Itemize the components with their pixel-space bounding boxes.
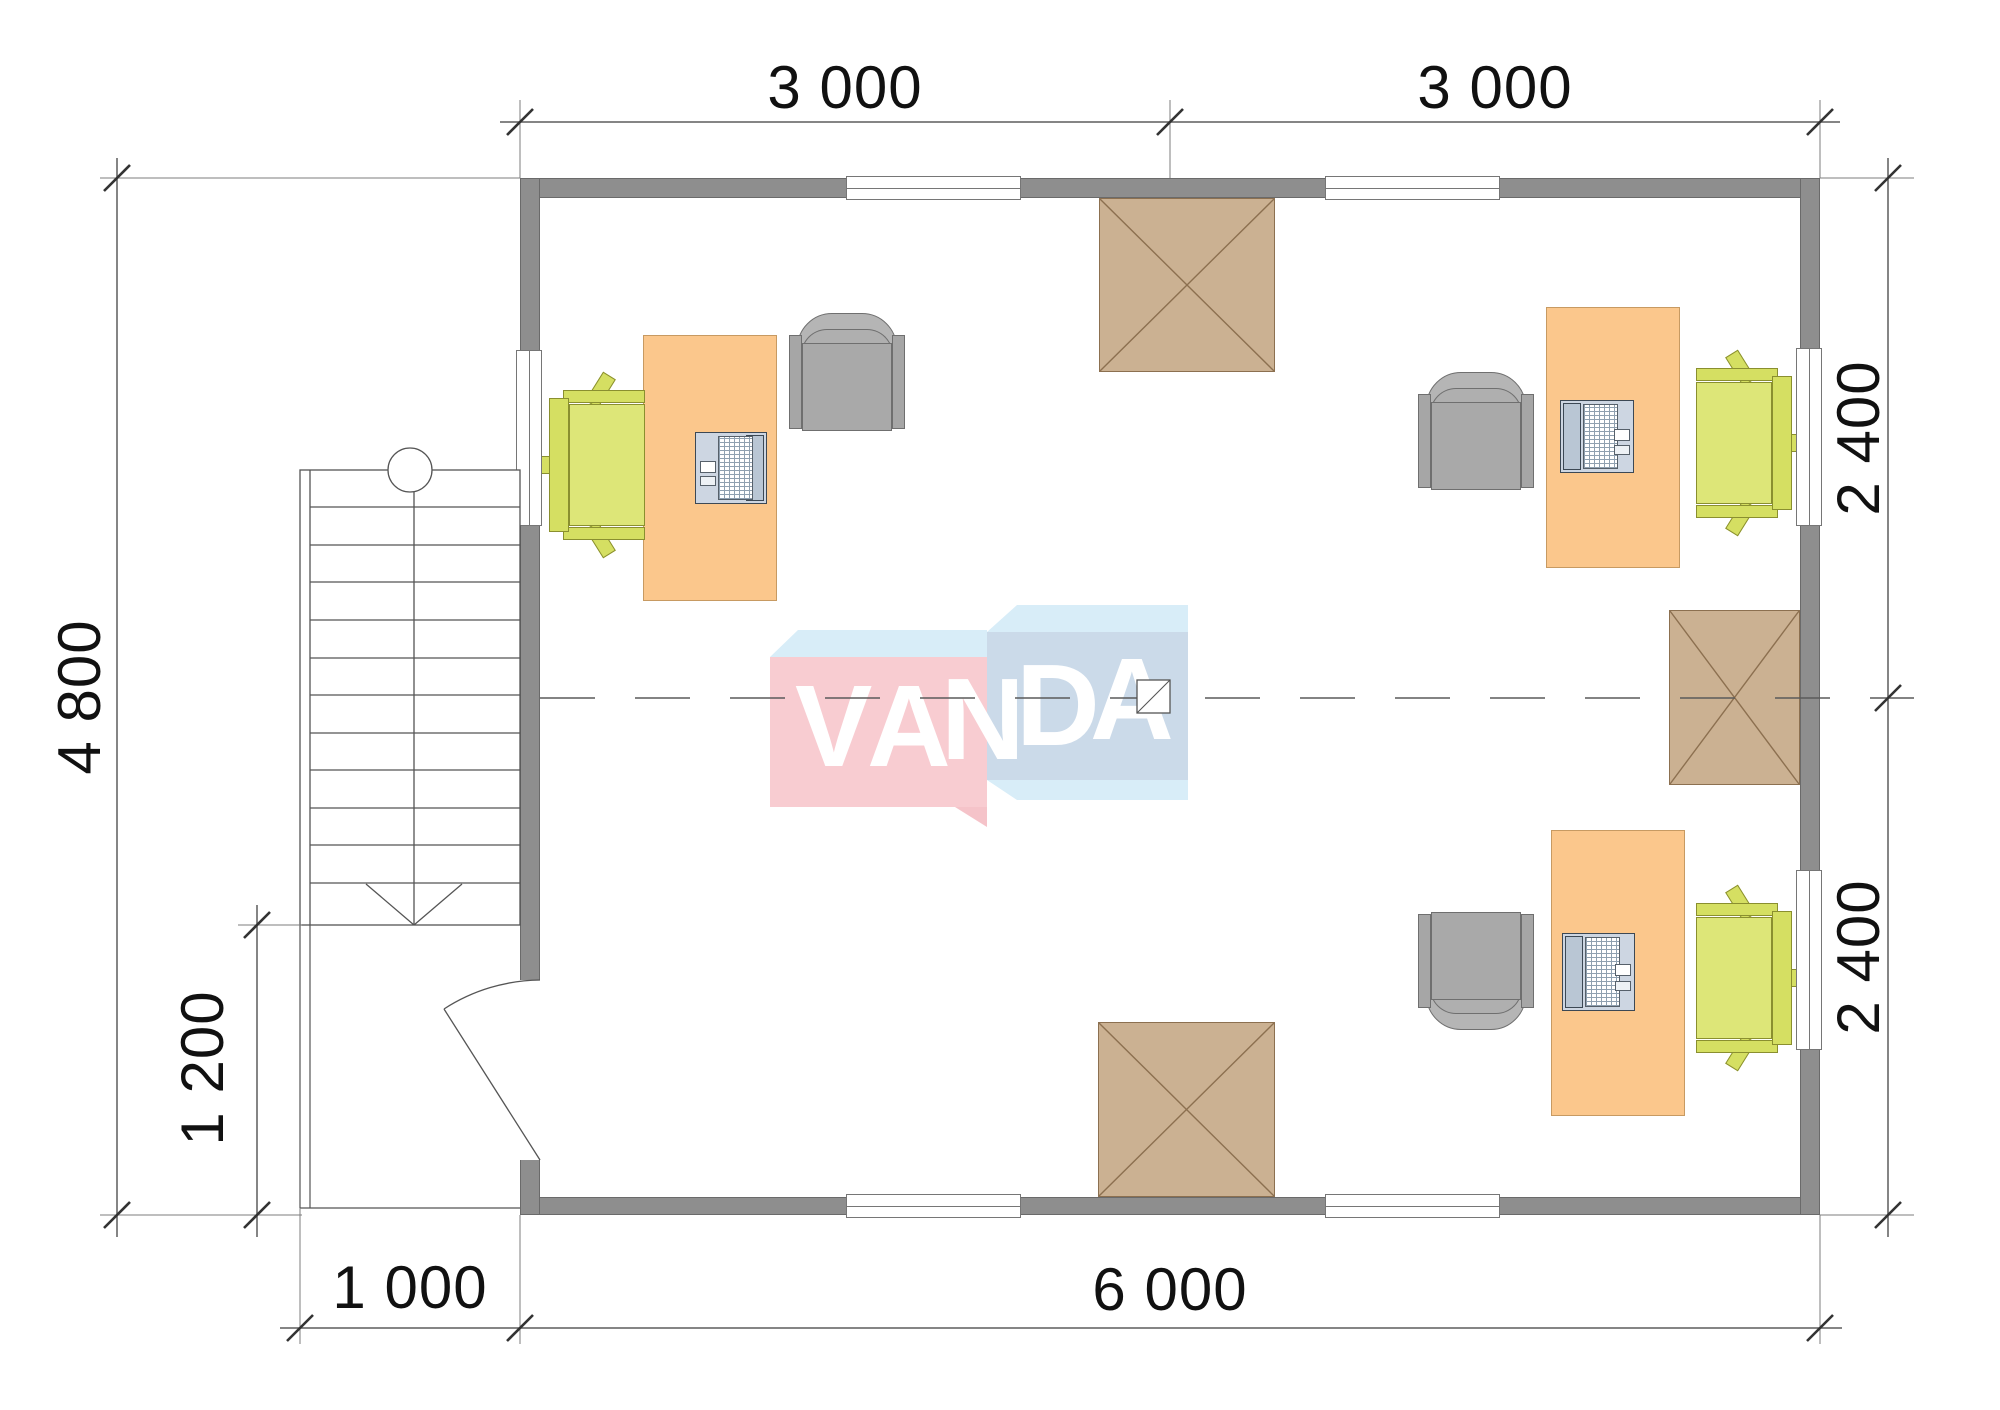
dim-label-top-left: 3 000 [735, 53, 955, 123]
center-marker [1137, 680, 1170, 713]
floor-plan: V A N D A [0, 0, 2000, 1410]
line-work [0, 0, 2000, 1410]
dim-label-bottom-main: 6 000 [1060, 1255, 1280, 1325]
dim-label-bottom-porch: 1 000 [300, 1253, 520, 1323]
porch-outline [300, 925, 520, 1208]
stair-column-circle [388, 448, 432, 492]
dim-label-right-upper: 2 400 [1824, 328, 1894, 548]
staircase [300, 470, 520, 925]
dim-label-right-lower: 2 400 [1824, 847, 1894, 1067]
dim-label-top-right: 3 000 [1385, 53, 1605, 123]
door-swing [444, 980, 540, 1160]
dim-label-left-porch: 1 200 [168, 958, 238, 1178]
dim-label-left-total: 4 800 [45, 587, 115, 807]
